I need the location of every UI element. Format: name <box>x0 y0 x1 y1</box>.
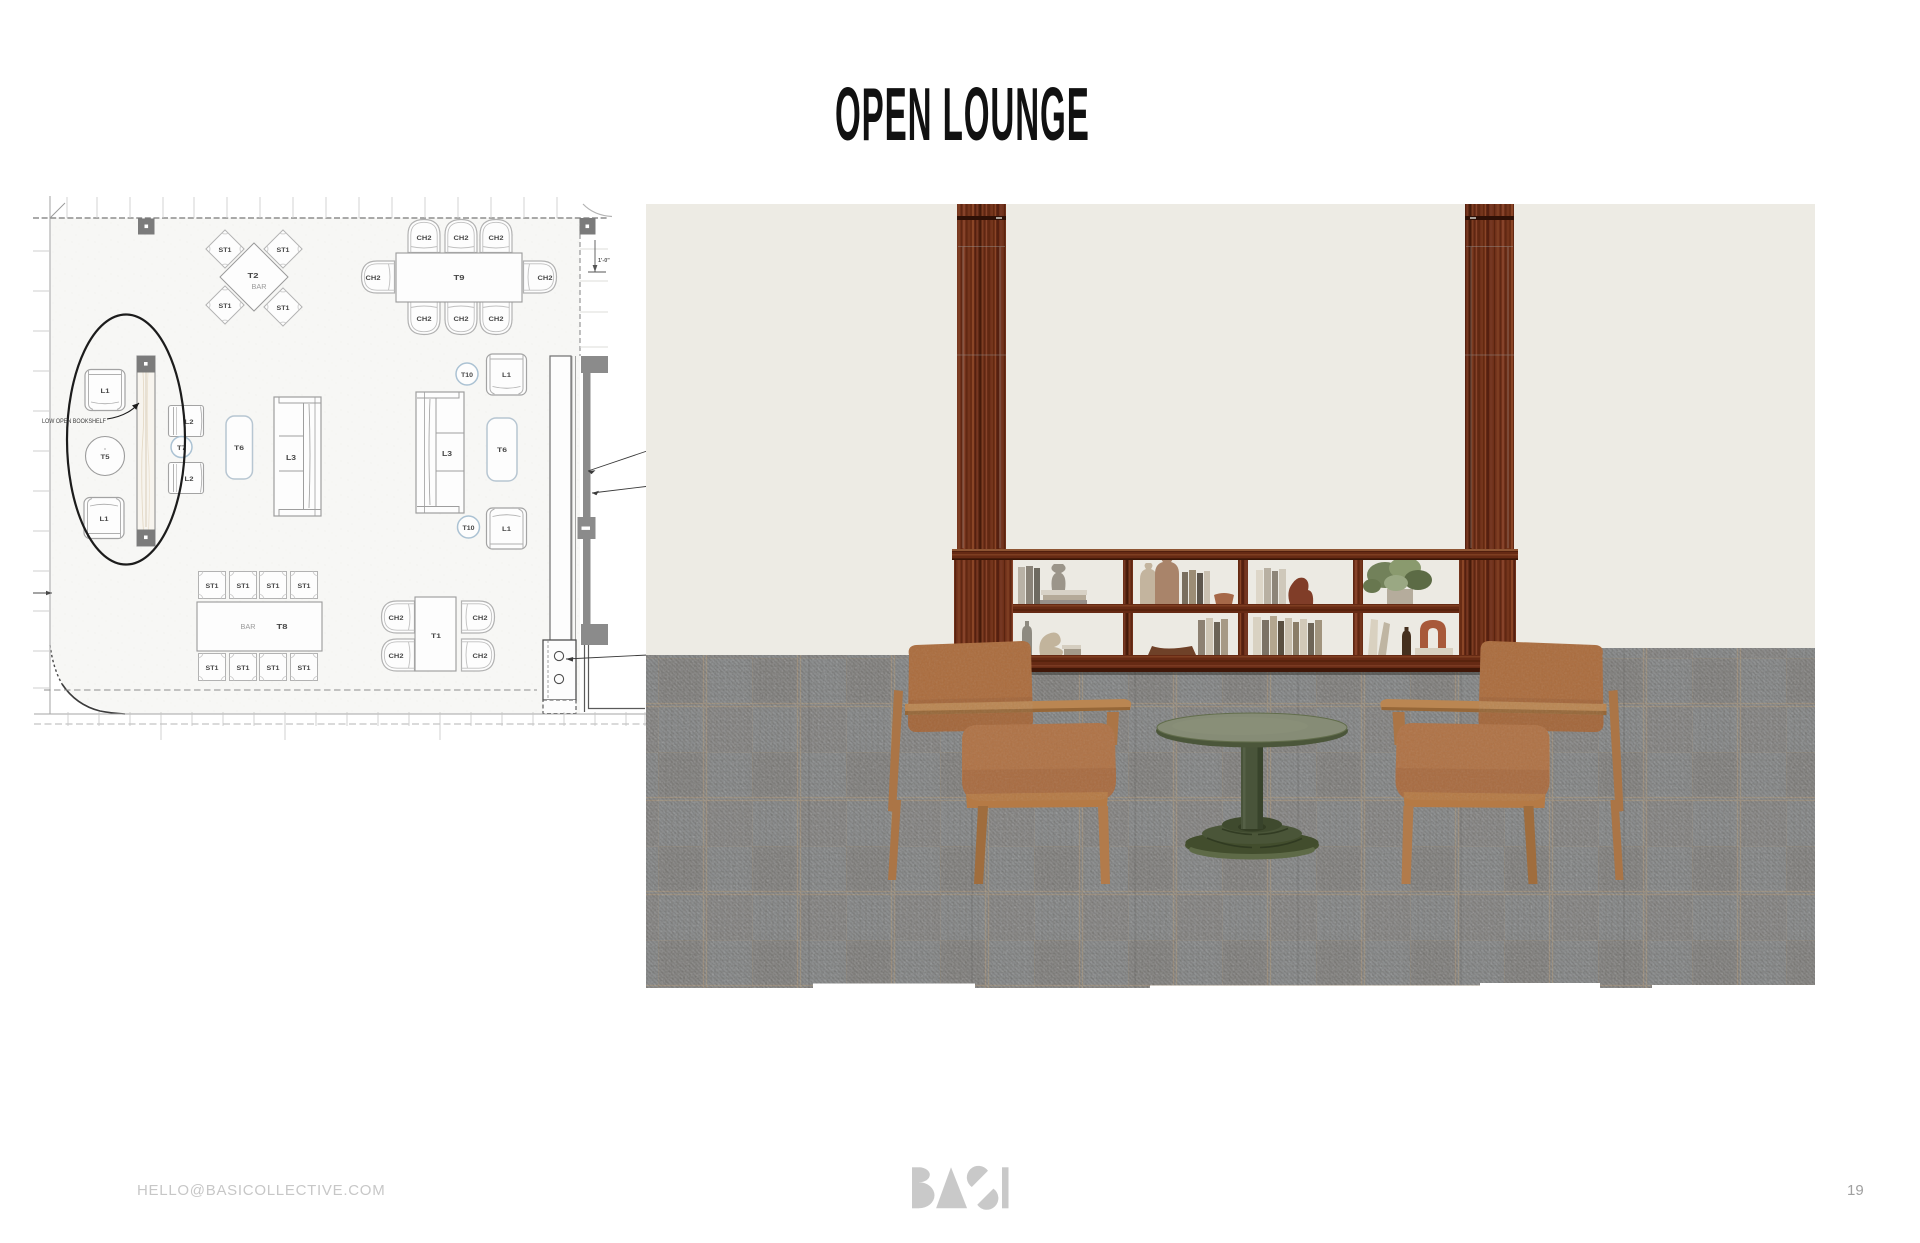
svg-text:ST1: ST1 <box>267 665 280 672</box>
svg-text:ST1: ST1 <box>298 665 311 672</box>
svg-text:L3: L3 <box>286 455 296 462</box>
svg-text:T2: T2 <box>248 273 259 280</box>
svg-text:T1: T1 <box>431 633 441 640</box>
svg-text:BAR: BAR <box>241 624 256 631</box>
svg-text:T5: T5 <box>101 454 110 461</box>
svg-text:T10: T10 <box>461 372 474 379</box>
svg-text:ST1: ST1 <box>206 583 219 590</box>
svg-text:L2: L2 <box>185 476 194 483</box>
svg-text:CH2: CH2 <box>389 653 404 660</box>
svg-text:CH2: CH2 <box>489 316 504 323</box>
svg-text:L1: L1 <box>101 388 110 395</box>
svg-text:CH2: CH2 <box>454 235 469 242</box>
svg-text:CH2: CH2 <box>417 316 432 323</box>
svg-text:ST1: ST1 <box>237 665 250 672</box>
svg-text:L2: L2 <box>185 419 194 426</box>
svg-text:CH2: CH2 <box>489 235 504 242</box>
svg-text:ST1: ST1 <box>219 303 232 310</box>
svg-text:ST1: ST1 <box>277 247 290 254</box>
svg-text:T10: T10 <box>463 525 476 532</box>
svg-text:ST1: ST1 <box>298 583 311 590</box>
svg-text:CH2: CH2 <box>454 316 469 323</box>
svg-text:BAR: BAR <box>252 284 267 291</box>
svg-text:ST1: ST1 <box>277 305 290 312</box>
svg-text:ST1: ST1 <box>267 583 280 590</box>
svg-text:CH2: CH2 <box>473 653 488 660</box>
svg-text:T6: T6 <box>497 447 507 454</box>
svg-text:ST1: ST1 <box>237 583 250 590</box>
svg-text:CH2: CH2 <box>473 615 488 622</box>
svg-text:CH2: CH2 <box>389 615 404 622</box>
svg-text:L1: L1 <box>100 516 109 523</box>
svg-text:T8: T8 <box>277 624 288 631</box>
svg-text:L1: L1 <box>502 526 511 533</box>
svg-text:ST1: ST1 <box>219 247 232 254</box>
svg-text:CH2: CH2 <box>417 235 432 242</box>
svg-text:ST1: ST1 <box>206 665 219 672</box>
svg-text:L1: L1 <box>502 372 511 379</box>
svg-text:LOW OPEN BOOKSHELF: LOW OPEN BOOKSHELF <box>42 418 106 425</box>
svg-text:CH2: CH2 <box>538 275 553 282</box>
svg-text:T9: T9 <box>454 275 465 282</box>
svg-text:1'-0": 1'-0" <box>598 258 610 264</box>
svg-text:L3: L3 <box>442 451 452 458</box>
svg-text:CH2: CH2 <box>366 275 381 282</box>
svg-text:T6: T6 <box>234 445 244 452</box>
